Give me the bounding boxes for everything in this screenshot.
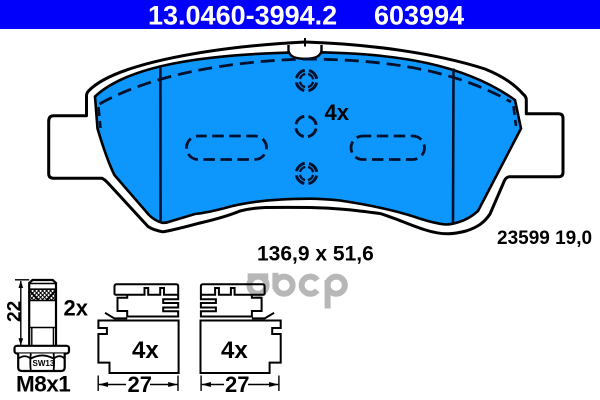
svg-text:27: 27 <box>225 372 249 397</box>
svg-text:4x: 4x <box>221 337 248 364</box>
svg-text:13.0460-3994.2: 13.0460-3994.2 <box>148 1 337 31</box>
svg-text:M8x1: M8x1 <box>16 371 70 396</box>
svg-text:23599 19,0: 23599 19,0 <box>497 228 592 249</box>
svg-text:136,9 x 51,6: 136,9 x 51,6 <box>257 243 374 266</box>
svg-text:27: 27 <box>128 372 152 397</box>
svg-text:2x: 2x <box>64 296 89 321</box>
svg-text:603994: 603994 <box>374 1 464 31</box>
svg-text:22: 22 <box>4 301 25 322</box>
svg-text:SW13: SW13 <box>33 359 55 368</box>
svg-text:4x: 4x <box>325 100 350 125</box>
svg-text:4x: 4x <box>132 337 159 364</box>
